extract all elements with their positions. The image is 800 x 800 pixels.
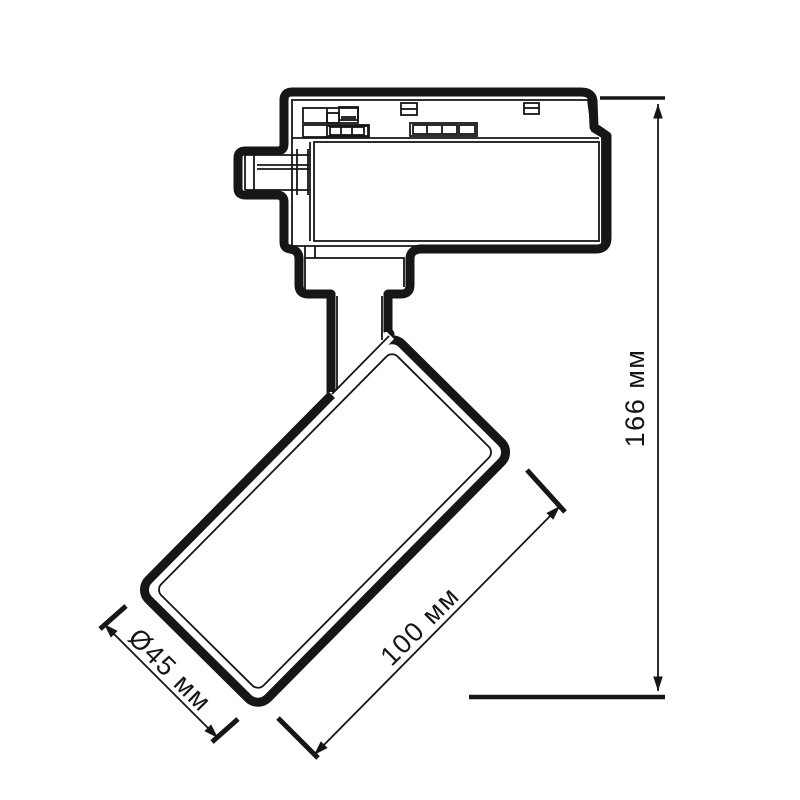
lamp-head [139, 334, 512, 708]
length-tick-lower [278, 718, 318, 758]
diameter-tick-upper [100, 606, 126, 629]
lamp-head-outline [139, 334, 512, 708]
length-dimension-label: 100 мм [375, 581, 466, 672]
height-dimension-label: 166 мм [620, 349, 650, 448]
diameter-tick-lower [212, 719, 238, 742]
technical-drawing: 166 мм 100 мм Ø45 мм [0, 0, 800, 800]
drawing-canvas: 166 мм 100 мм Ø45 мм [0, 0, 800, 800]
